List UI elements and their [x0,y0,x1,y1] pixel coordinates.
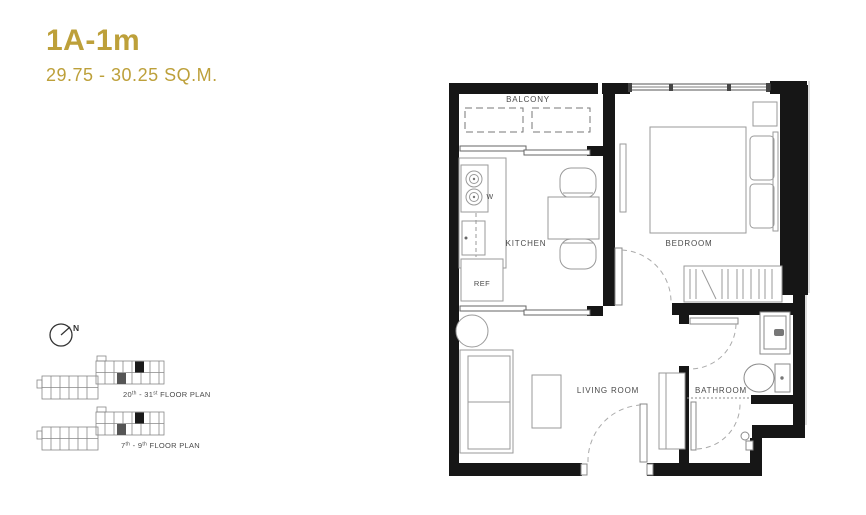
bedroom-wall-panel [620,144,626,212]
shoe-cabinet [659,373,685,449]
bedroom-window [628,83,770,92]
washer-label: W [486,194,493,201]
shower-door [683,398,751,450]
compass-north-label: N [73,323,79,333]
compass-needle-icon [61,327,70,335]
kitchen-counter [459,158,506,268]
living-room-label: LIVING ROOM [577,386,639,395]
kitchen-label: KITCHEN [506,239,547,248]
balcony-label: BALCONY [506,95,550,104]
toilet [744,364,790,392]
unit-plan-page: 1A-1m 29.75 - 30.25 SQ.M. [0,0,866,515]
bathroom-door [689,318,738,369]
refrigerator-label: REF [474,279,490,288]
side-table [456,315,488,347]
floor-plan: BALCONY KITCHEN BEDROOM LIVING ROOM BATH… [449,81,809,476]
entrance-door-frame [581,464,653,475]
dining-set [548,168,599,269]
sink [760,312,790,354]
bedroom-label: BEDROOM [666,239,713,248]
shower-head [741,432,753,450]
bed [650,127,778,233]
floor-plan-drawing: BALCONY KITCHEN BEDROOM LIVING ROOM BATH… [0,0,866,515]
sofa [460,350,513,453]
kitchen-sliding-door [460,306,590,315]
bathroom-label: BATHROOM [695,386,747,395]
bedroom-door [615,248,671,305]
key-plans: 20th - 31st FLOOR PLAN 7th - 9th FLOOR P… [37,356,211,450]
compass: N [50,323,79,346]
key-plan-label-lower: 7th - 9th FLOOR PLAN [121,441,200,450]
wardrobe [684,266,782,302]
balcony-sliding-door [460,146,590,155]
key-plan-label-upper: 20th - 31st FLOOR PLAN [123,390,211,399]
balcony-planters [465,108,590,132]
entrance-door [588,404,647,462]
coffee-table [532,375,561,428]
nightstand [753,102,777,126]
